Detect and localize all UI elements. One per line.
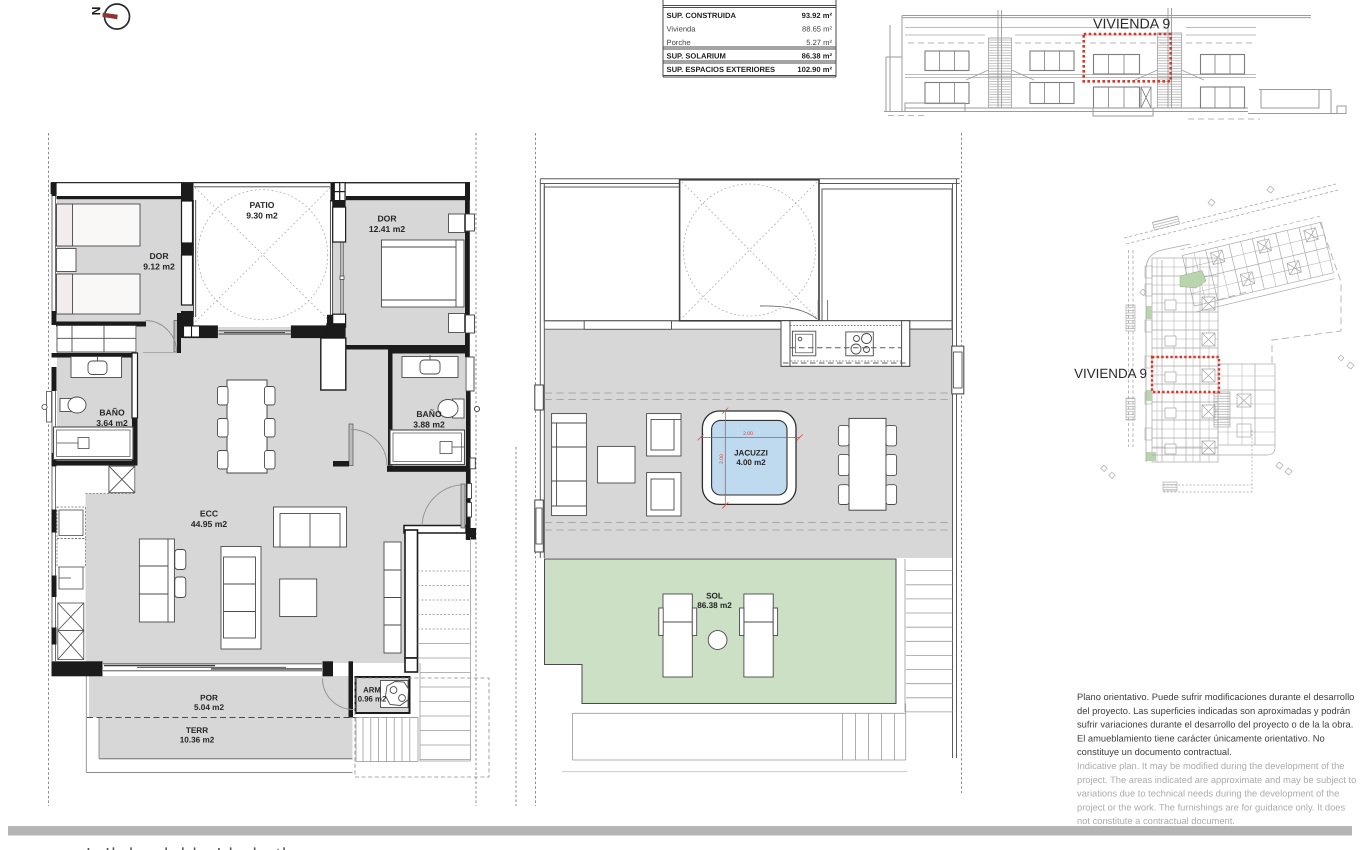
svg-text:86.38 m²: 86.38 m² xyxy=(802,52,833,61)
svg-text:9.12 m2: 9.12 m2 xyxy=(143,262,175,272)
svg-text:3.88 m2: 3.88 m2 xyxy=(413,420,445,430)
svg-text:44.95 m2: 44.95 m2 xyxy=(191,519,228,529)
svg-text:JACUZZI: JACUZZI xyxy=(734,449,768,458)
svg-text:variations due to technical ne: variations due to technical needs during… xyxy=(1077,789,1339,799)
svg-text:del proyecto. Las superficies: del proyecto. Las superficies indicadas … xyxy=(1077,706,1350,716)
svg-text:PATIO: PATIO xyxy=(250,200,275,210)
svg-text:not constitute a contractual d: not constitute a contractual document. xyxy=(1077,816,1235,826)
svg-text:N: N xyxy=(89,7,103,16)
svg-text:VIVIENDA 9: VIVIENDA 9 xyxy=(1074,366,1147,381)
svg-text:sufrir variaciones durante el: sufrir variaciones durante el desarrollo… xyxy=(1077,720,1353,730)
svg-text:SUP. CONSTRUIDA: SUP. CONSTRUIDA xyxy=(667,11,737,20)
svg-text:2.00: 2.00 xyxy=(719,454,725,464)
svg-text:0.96 m2: 0.96 m2 xyxy=(358,695,387,704)
svg-text:88.65 m²: 88.65 m² xyxy=(802,25,832,34)
svg-text:86.38 m2: 86.38 m2 xyxy=(697,601,732,610)
svg-text:project or the work. The furni: project or the work. The furnishings are… xyxy=(1077,802,1345,812)
svg-text:SUP. ESPACIOS EXTERIORES: SUP. ESPACIOS EXTERIORES xyxy=(667,65,776,74)
svg-text:BAÑO: BAÑO xyxy=(99,408,125,418)
svg-text:DOR: DOR xyxy=(377,214,397,224)
svg-text:DOR: DOR xyxy=(149,251,169,261)
svg-text:project. The areas indicated a: project. The areas indicated are approxi… xyxy=(1077,775,1356,785)
svg-text:12.41 m2: 12.41 m2 xyxy=(369,224,406,234)
svg-text:POR: POR xyxy=(200,694,218,703)
svg-text:SOL: SOL xyxy=(706,592,723,601)
svg-text:I. Il da. del b. Id. de tl: I. Il da. del b. Id. de tl xyxy=(86,844,287,850)
svg-text:TERR: TERR xyxy=(186,726,208,735)
svg-text:5.04 m2: 5.04 m2 xyxy=(194,703,224,712)
svg-text:10.36 m2: 10.36 m2 xyxy=(180,736,215,745)
svg-text:BAÑO: BAÑO xyxy=(416,409,442,419)
svg-text:VIVIENDA 9: VIVIENDA 9 xyxy=(1093,17,1170,33)
svg-text:Porche: Porche xyxy=(667,38,691,47)
svg-text:Indicative plan. It may be mod: Indicative plan. It may be modified duri… xyxy=(1077,761,1345,771)
svg-text:5.27 m²: 5.27 m² xyxy=(806,38,832,47)
svg-text:Plano orientativo. Puede sufri: Plano orientativo. Puede sufrir modifica… xyxy=(1077,692,1354,702)
svg-text:9.30 m2: 9.30 m2 xyxy=(246,211,278,221)
svg-text:constituye un documento contra: constituye un documento contractual. xyxy=(1077,747,1232,757)
svg-text:ARM: ARM xyxy=(363,686,381,695)
svg-text:4.00 m2: 4.00 m2 xyxy=(736,458,766,467)
svg-text:93.92 m²: 93.92 m² xyxy=(802,11,833,20)
svg-text:2.00: 2.00 xyxy=(743,431,753,437)
svg-text:102.90 m²: 102.90 m² xyxy=(797,65,832,74)
svg-text:Vivienda: Vivienda xyxy=(667,25,697,34)
svg-text:SUP. SOLARIUM: SUP. SOLARIUM xyxy=(667,52,726,61)
svg-text:ECC: ECC xyxy=(200,509,218,519)
svg-text:El amueblamiento tiene carácte: El amueblamiento tiene carácter únicamen… xyxy=(1077,733,1325,743)
